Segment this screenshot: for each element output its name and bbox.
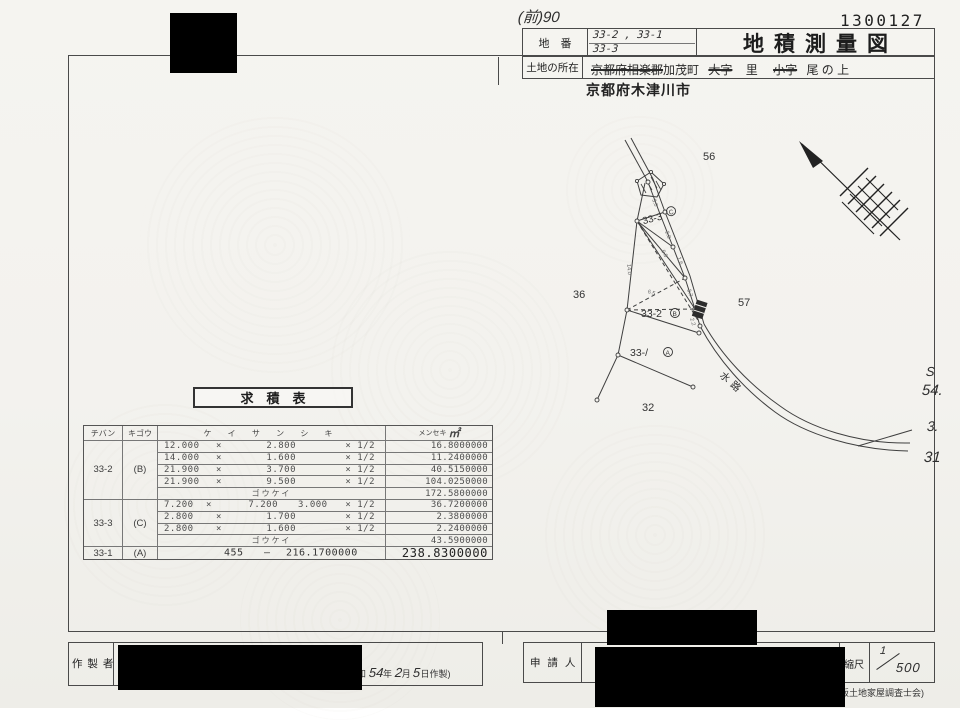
col-header-area: メンセキ ㎡ <box>386 426 492 441</box>
measurement-label: 2.2 <box>688 317 696 326</box>
formula-half: × 1/2 <box>345 441 375 451</box>
formula-a: 14.000 <box>164 453 200 463</box>
region-label-56: 56 <box>703 151 715 163</box>
region-label-57: 57 <box>738 297 750 309</box>
parcel-mark-b: B <box>673 311 677 318</box>
date-day-unit: 日作製) <box>421 669 451 679</box>
survey-line <box>637 221 685 278</box>
parcel-mark-a: A <box>666 350 671 357</box>
survey-line-dashed <box>627 278 685 310</box>
handwritten-reference-number: (前)90 <box>517 6 560 27</box>
formula-a: 21.900 <box>164 477 200 487</box>
formula-b: 2.800 <box>234 441 296 451</box>
formula-times: × <box>216 441 222 451</box>
formula-times: × <box>206 500 212 510</box>
creation-date: 和 54年 2月 5日作製) <box>357 665 451 680</box>
scale-denominator: 500 <box>895 660 921 675</box>
symbol-cell-b: (B) <box>123 441 158 500</box>
measurement-label: 14.0 <box>625 264 632 275</box>
formula-half: × 1/2 <box>345 465 375 475</box>
margin-note-month: 3. <box>926 418 939 434</box>
formula-half: × 1/2 <box>345 512 375 522</box>
parcel-label-33-2: 33-2 <box>641 308 662 320</box>
measurement-label: 6.5 <box>647 289 656 297</box>
formula-times: × <box>216 477 222 487</box>
formula-a: 12.000 <box>164 441 200 451</box>
maker-label: 作 製 者 <box>72 656 114 671</box>
formula-a: 2.800 <box>164 512 194 522</box>
waterway-branch <box>858 430 912 446</box>
date-year-unit: 年 <box>383 669 392 679</box>
margin-note-day: 31 <box>923 449 941 466</box>
formula-times: × <box>216 465 222 475</box>
col-header-symbol: キゴウ <box>123 426 158 441</box>
document-number: 1300127 <box>840 11 925 30</box>
measurement-label: 2.8 <box>663 230 671 239</box>
formula-b: 9.500 <box>234 477 296 487</box>
formula-a: 7.200 <box>164 500 194 510</box>
lot-cell-33-2: 33-2 <box>84 441 123 500</box>
formula-times: × <box>216 524 222 534</box>
lot-cell-33-1: 33-1 <box>84 547 123 559</box>
area-table-title-box: 求 積 表 <box>193 387 353 408</box>
measurement-label: 1.6 <box>675 256 683 265</box>
scale-value-divider <box>869 643 870 682</box>
final-base: 455 <box>224 548 244 559</box>
region-label-32: 32 <box>642 402 654 414</box>
area-table-title: 求 積 表 <box>240 388 305 407</box>
date-month: 2 <box>394 665 402 680</box>
area-value: 40.5150000 <box>386 465 492 477</box>
col-header-formula: ケ イ サ ン シ キ <box>158 426 386 441</box>
formula-c: 3.000 <box>298 500 328 510</box>
parcel-mark-c: C <box>668 209 675 217</box>
parcel-left-boundary <box>597 183 645 400</box>
area-value: 2.2400000 <box>386 524 492 536</box>
area-value: 16.8000000 <box>386 441 492 453</box>
formula-half: × 1/2 <box>345 453 375 463</box>
formula-row: 21.900 × 9.500 × 1/2 <box>158 476 386 488</box>
margin-note-s: S <box>925 364 935 379</box>
formula-b: 3.700 <box>234 465 296 475</box>
boundary-33-1-32 <box>618 355 693 387</box>
formula-times: × <box>216 512 222 522</box>
symbol-cell-a: (A) <box>123 547 158 559</box>
symbol-cell-c: (C) <box>123 500 158 547</box>
col-header-area-text: メンセキ <box>419 428 447 438</box>
date-month-unit: 月 <box>402 669 411 679</box>
area-value: 2.3800000 <box>386 512 492 524</box>
area-calculation-table: チバン キゴウ ケ イ サ ン シ キ メンセキ ㎡ 33-2 (B) 12.0… <box>83 425 493 560</box>
formula-half: × 1/2 <box>345 524 375 534</box>
parcel-label-33-3: 33-3 <box>641 212 664 228</box>
applicant-label: 申 請 人 <box>530 655 577 670</box>
scale-numerator: 1 <box>880 645 887 657</box>
redaction-box-top-left <box>170 13 237 73</box>
north-arrow-icon <box>799 141 908 240</box>
formula-b: 1.600 <box>234 524 296 534</box>
scale-label: 縮尺 <box>844 656 864 671</box>
boundary-33-2-33-1 <box>627 310 699 333</box>
area-value: 104.0250000 <box>386 476 492 488</box>
col-header-lot: チバン <box>84 426 123 441</box>
survey-map: 56 36 57 32 33-3 C 33-2 B 33-/ A 水路 3.0 … <box>0 0 960 720</box>
redaction-box-above-applicant <box>607 610 757 645</box>
formula-times: × <box>216 453 222 463</box>
final-area-value: 238.8300000 <box>386 547 492 559</box>
parcel-label-33-1: 33-/ <box>630 347 648 359</box>
formula-a: 21.900 <box>164 465 200 475</box>
margin-note-year: 54. <box>921 382 943 399</box>
formula-row: 2.800 × 1.700 × 1/2 <box>158 512 386 524</box>
subtotal-value: 172.5800000 <box>386 488 492 500</box>
area-value: 11.2400000 <box>386 453 492 465</box>
lot-cell-33-3: 33-3 <box>84 500 123 547</box>
formula-row: 7.200 × 7.200 3.000 × 1/2 <box>158 500 386 512</box>
redaction-box-maker-name <box>118 645 362 690</box>
subtotal-label: ゴウケイ <box>158 535 386 547</box>
formula-row: 2.800 × 1.600 × 1/2 <box>158 524 386 536</box>
formula-row: 21.900 × 3.700 × 1/2 <box>158 465 386 477</box>
formula-a: 2.800 <box>164 524 194 534</box>
formula-b: 7.200 <box>220 500 278 510</box>
bridge-marker <box>692 300 708 320</box>
date-year: 54 <box>368 665 384 680</box>
formula-row: 14.000 × 1.600 × 1/2 <box>158 453 386 465</box>
formula-b: 1.600 <box>234 453 296 463</box>
subtotal-label: ゴウケイ <box>158 488 386 500</box>
survey-point-markers <box>595 170 702 402</box>
formula-half: × 1/2 <box>345 500 375 510</box>
final-formula-row: 455 — 216.1700000 <box>158 547 386 559</box>
survey-document-scan: { "page": { "handwritten_ref": "(前)90", … <box>0 0 960 720</box>
final-dash: — <box>264 548 271 559</box>
formula-row: 12.000 × 2.800 × 1/2 <box>158 441 386 453</box>
city-stamp: 京都府木津川市 <box>586 80 691 100</box>
region-label-36: 36 <box>573 289 585 301</box>
area-value: 36.7200000 <box>386 500 492 512</box>
date-day: 5 <box>413 665 421 680</box>
redaction-box-applicant-name <box>595 647 845 707</box>
applicant-box-divider <box>581 643 582 682</box>
col-header-area-unit: ㎡ <box>449 425 460 441</box>
formula-half: × 1/2 <box>345 477 375 487</box>
final-deduction: 216.1700000 <box>286 548 358 559</box>
formula-b: 1.700 <box>234 512 296 522</box>
